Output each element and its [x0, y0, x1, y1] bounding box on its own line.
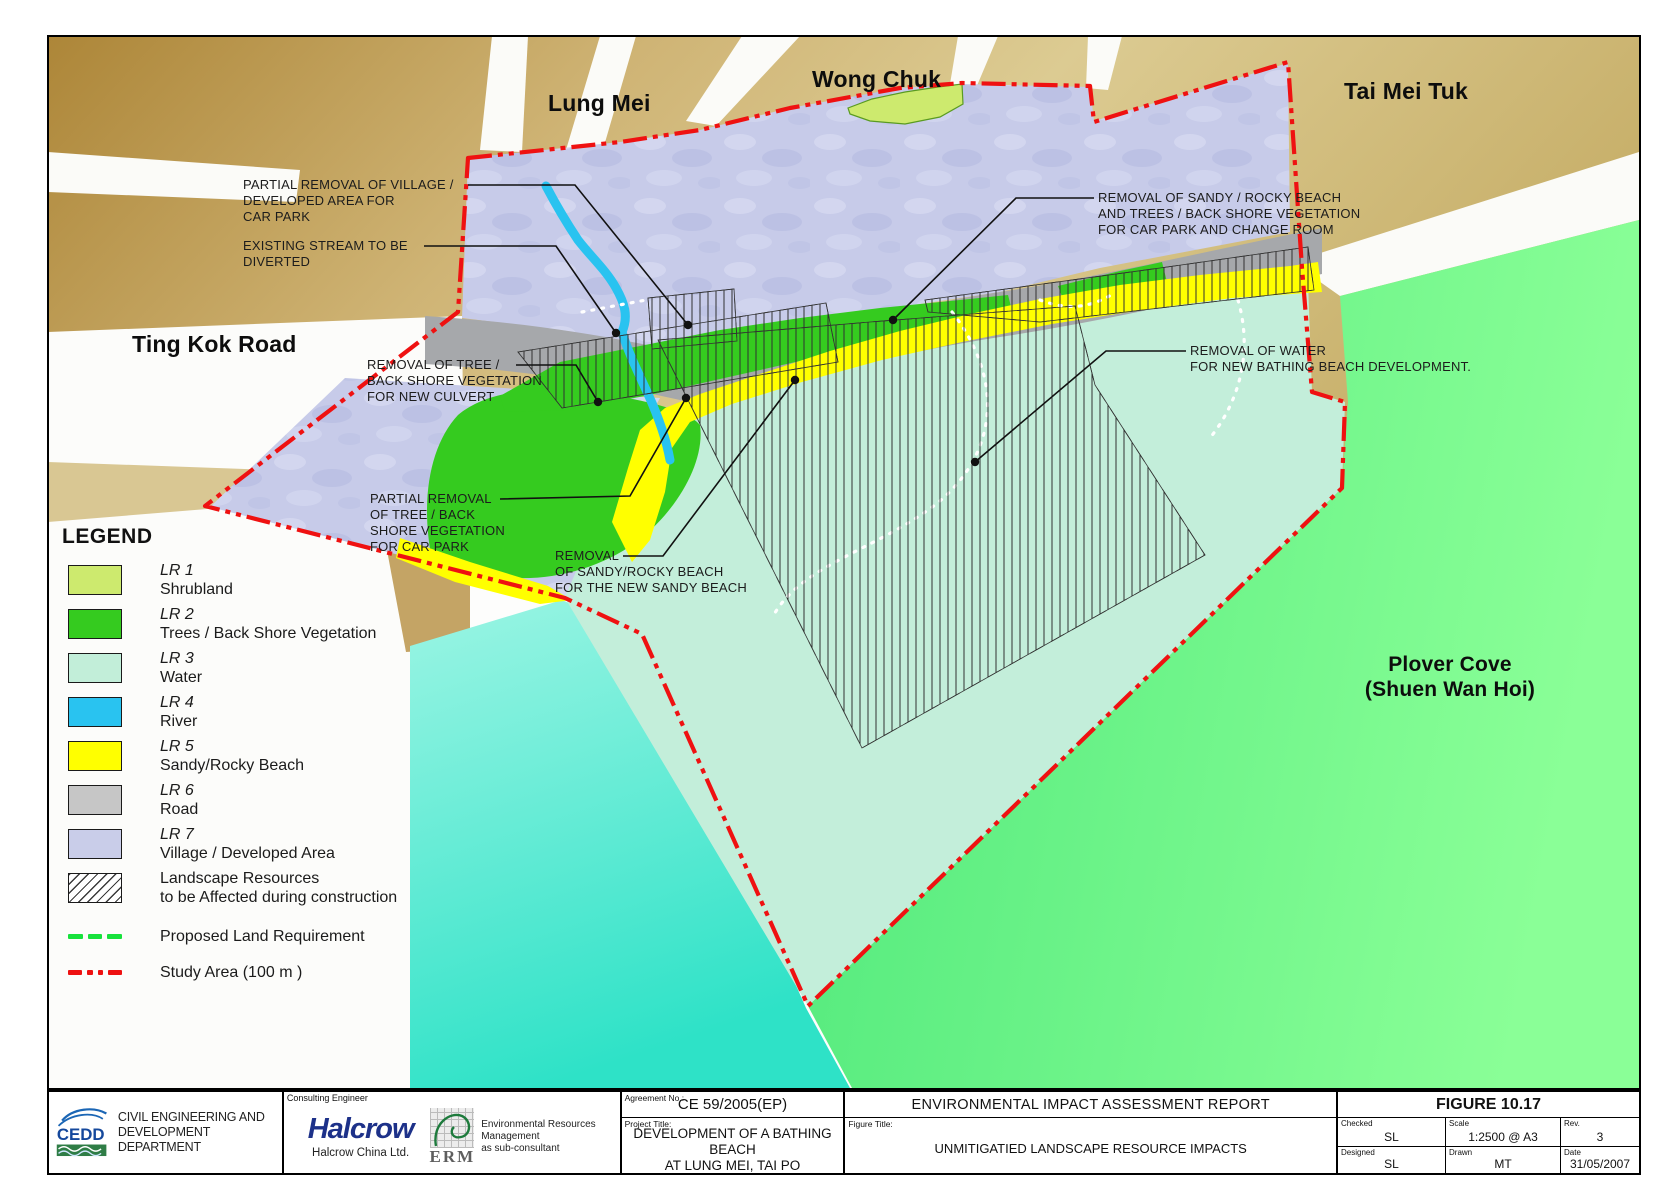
legend-swatch-beach: [68, 741, 122, 771]
annotation-removal-water: REMOVAL OF WATER FOR NEW BATHING BEACH D…: [1190, 343, 1520, 375]
legend-item-lr4: LR 4River: [68, 693, 397, 731]
scale-cell: Scale1:2500 @ A3: [1445, 1118, 1560, 1146]
legend-swatch-red-dash: [68, 970, 122, 975]
legend-swatch-green-dash: [68, 934, 122, 939]
place-label-plover-cove: Plover Cove (Shuen Wan Hoi): [1330, 652, 1570, 702]
svg-text:CEDD: CEDD: [57, 1125, 105, 1144]
place-label-tai-mei-tuk: Tai Mei Tuk: [1344, 78, 1468, 105]
title-block: CEDD CIVIL ENGINEERING AND DEVELOPMENT D…: [47, 1090, 1641, 1175]
halcrow-logo: Halcrow Halcrow China Ltd.: [308, 1115, 414, 1159]
legend-item-lr6: LR 6Road: [68, 781, 397, 819]
legend-item-lr5: LR 5Sandy/Rocky Beach: [68, 737, 397, 775]
annotation-removal-sandy-carpark-changeroom: REMOVAL OF SANDY / ROCKY BEACH AND TREES…: [1098, 190, 1428, 238]
figure-sheet: Lung Mei Wong Chuk Tai Mei Tuk Ting Kok …: [0, 0, 1680, 1188]
cedd-logo: CEDD: [55, 1099, 110, 1167]
legend-item-study-area: Study Area (100 m ): [68, 965, 397, 979]
report-figure-title-section: ENVIRONMENTAL IMPACT ASSESSMENT REPORT F…: [843, 1092, 1336, 1173]
place-label-lung-mei: Lung Mei: [548, 90, 651, 117]
erm-logo: ERM Environmental Resources Management a…: [430, 1108, 596, 1165]
annotation-partial-removal-village: PARTIAL REMOVAL OF VILLAGE / DEVELOPED A…: [243, 177, 478, 225]
legend-swatch-village: [68, 829, 122, 859]
legend-item-proposed-land: Proposed Land Requirement: [68, 929, 397, 943]
drawn-cell: DrawnMT: [1445, 1146, 1560, 1174]
legend-item-affected: Landscape Resources to be Affected durin…: [68, 869, 397, 907]
consulting-engineer-label: Consulting Engineer: [287, 1093, 368, 1103]
erm-grid-icon: [430, 1108, 474, 1148]
legend-item-lr3: LR 3Water: [68, 649, 397, 687]
project-title-value: DEVELOPMENT OF A BATHING BEACH AT LUNG M…: [622, 1126, 844, 1174]
consulting-engineer-section: Consulting Engineer Halcrow Halcrow Chin…: [282, 1092, 620, 1173]
annotation-removal-sandy-new-beach: REMOVAL OF SANDY/ROCKY BEACH FOR THE NEW…: [555, 548, 795, 596]
legend-swatch-road: [68, 785, 122, 815]
place-label-ting-kok-road: Ting Kok Road: [132, 331, 296, 358]
cedd-name: CIVIL ENGINEERING AND DEVELOPMENT DEPART…: [118, 1110, 276, 1155]
legend-title: LEGEND: [62, 525, 153, 549]
agreement-project-section: Agreement No.: CE 59/2005(EP) Project Ti…: [620, 1092, 844, 1173]
legend: LR 1Shrubland LR 2Trees / Back Shore Veg…: [68, 561, 397, 979]
legend-swatch-river: [68, 697, 122, 727]
rev-cell: Rev.3: [1560, 1118, 1639, 1146]
legend-swatch-shrubland: [68, 565, 122, 595]
date-cell: Date31/05/2007: [1560, 1146, 1639, 1174]
place-label-wong-chuk: Wong Chuk: [812, 66, 941, 93]
annotation-existing-stream: EXISTING STREAM TO BE DIVERTED: [243, 238, 463, 270]
cedd-section: CEDD CIVIL ENGINEERING AND DEVELOPMENT D…: [49, 1092, 282, 1173]
erm-description: Environmental Resources Management as su…: [481, 1119, 596, 1155]
legend-item-lr1: LR 1Shrubland: [68, 561, 397, 599]
legend-swatch-water: [68, 653, 122, 683]
legend-item-lr2: LR 2Trees / Back Shore Vegetation: [68, 605, 397, 643]
revision-grid: CheckedSL Scale1:2500 @ A3 Rev.3 Designe…: [1338, 1118, 1639, 1173]
project-title-label: Project Title:: [625, 1119, 672, 1129]
legend-swatch-vegetation: [68, 609, 122, 639]
agreement-value: CE 59/2005(EP): [678, 1096, 787, 1113]
halcrow-subtitle: Halcrow China Ltd.: [308, 1147, 414, 1159]
figure-number-section: FIGURE 10.17 CheckedSL Scale1:2500 @ A3 …: [1336, 1092, 1639, 1173]
designed-cell: DesignedSL: [1338, 1146, 1445, 1174]
legend-swatch-hatch: [68, 873, 122, 903]
annotation-removal-tree-culvert: REMOVAL OF TREE / BACK SHORE VEGETATION …: [367, 357, 577, 405]
figure-title-value: UNMITIGATIED LANDSCAPE RESOURCE IMPACTS: [935, 1141, 1247, 1156]
report-title: ENVIRONMENTAL IMPACT ASSESSMENT REPORT: [911, 1097, 1269, 1113]
checked-cell: CheckedSL: [1338, 1118, 1445, 1146]
figure-number: FIGURE 10.17: [1436, 1096, 1541, 1114]
figure-title-label: Figure Title:: [848, 1119, 892, 1129]
legend-item-lr7: LR 7Village / Developed Area: [68, 825, 397, 863]
annotation-partial-removal-tree-carpark: PARTIAL REMOVAL OF TREE / BACK SHORE VEG…: [370, 491, 550, 555]
agreement-label: Agreement No.:: [625, 1093, 685, 1103]
